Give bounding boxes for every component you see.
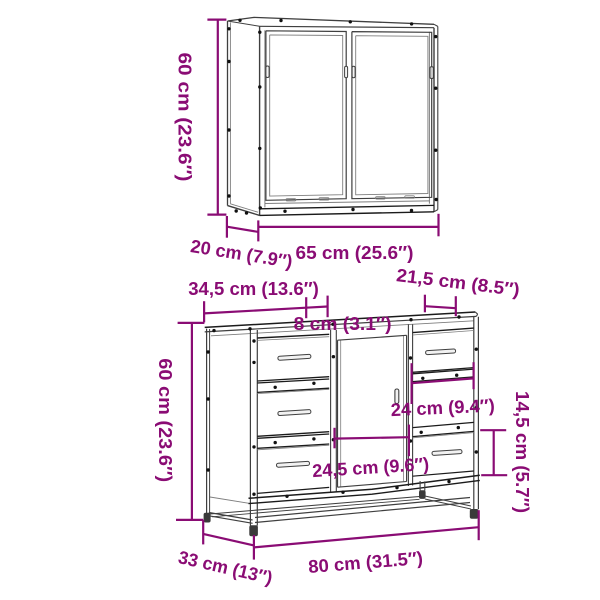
svg-text:60 cm (23.6″): 60 cm (23.6″) xyxy=(155,358,175,482)
svg-text:60 cm (23.6″): 60 cm (23.6″) xyxy=(175,53,195,182)
svg-text:34,5 cm (13.6″): 34,5 cm (13.6″) xyxy=(188,279,319,299)
svg-text:8 cm (3.1″): 8 cm (3.1″) xyxy=(294,314,392,334)
svg-text:14,5 cm (5.7″): 14,5 cm (5.7″) xyxy=(512,391,532,513)
svg-text:65 cm (25.6″): 65 cm (25.6″) xyxy=(296,243,414,263)
